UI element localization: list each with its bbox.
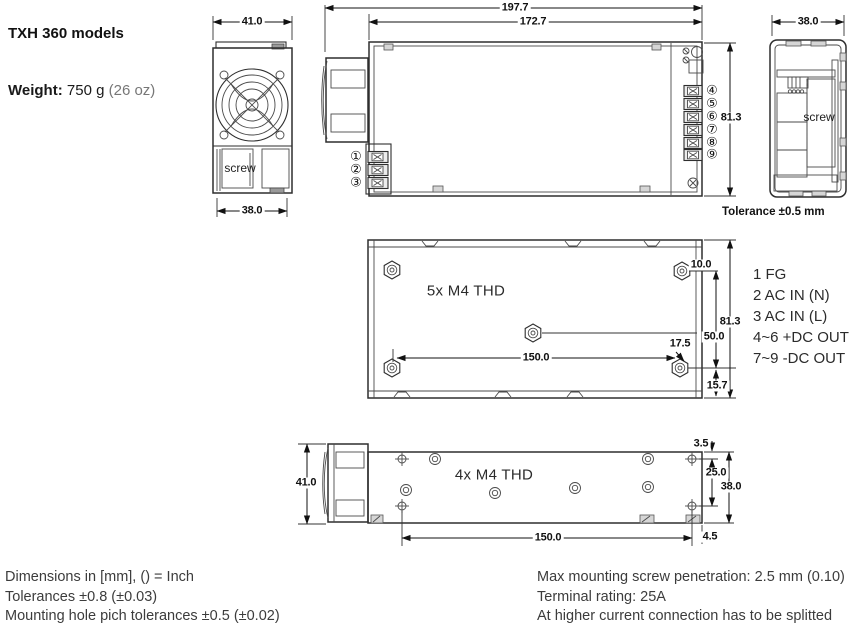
connector xyxy=(788,77,808,93)
led-window xyxy=(689,60,703,73)
m4-thread-hole xyxy=(384,261,400,279)
fan-protrusion-top xyxy=(322,58,368,142)
notes-right: Max mounting screw penetration: 2.5 mm (… xyxy=(537,568,845,627)
mechanical-drawing-page: TXH 360 models Weight: 750 g (26 oz) 41.… xyxy=(0,0,853,627)
fan-protrusion-side xyxy=(323,444,368,522)
note-terminal-rating: Terminal rating: 25A xyxy=(537,588,845,608)
m4-thread-hole xyxy=(525,324,541,342)
weight-value: 750 g xyxy=(67,82,105,99)
chassis-screw xyxy=(570,483,581,494)
dim-bottom-hole-edge: 10.0 xyxy=(689,260,714,271)
note-current-split: At higher current connection has to be s… xyxy=(537,607,845,627)
note-dimensions: Dimensions in [mm], () = Inch xyxy=(5,568,280,588)
chassis-screw xyxy=(401,485,412,496)
side-view-drawing xyxy=(298,441,734,546)
legend-item: 7~9 -DC OUT xyxy=(753,348,849,369)
side-thread-label: 4x M4 THD xyxy=(455,468,533,483)
dim-end-width: 38.0 xyxy=(796,17,821,28)
dim-side-hole-span: 25.0 xyxy=(704,468,729,479)
chassis-screw xyxy=(430,454,441,465)
dim-bottom-flange: 15.7 xyxy=(705,381,730,392)
m4-thread-hole xyxy=(674,262,690,280)
note-tolerances: Tolerances ±0.8 (±0.03) xyxy=(5,588,280,608)
terminal-number-3: ③ xyxy=(350,177,362,190)
dim-bottom-height: 81.3 xyxy=(718,317,743,328)
m4-mount-hole xyxy=(685,499,699,513)
note-hole-tolerances: Mounting hole pich tolerances ±0.5 (±0.0… xyxy=(5,607,280,627)
page-title: TXH 360 models xyxy=(8,26,124,41)
dim-top-height: 81.3 xyxy=(719,113,744,124)
dim-side-height-overall: 41.0 xyxy=(294,478,319,489)
dim-front-width-bottom: 38.0 xyxy=(240,206,265,217)
weight-line: Weight: 750 g (26 oz) xyxy=(8,83,155,98)
dim-front-width-top: 41.0 xyxy=(240,17,265,28)
top-view-drawing xyxy=(322,5,736,196)
dim-bottom-hole-span: 50.0 xyxy=(702,332,727,343)
m4-mount-hole xyxy=(395,499,409,513)
legend-item: 2 AC IN (N) xyxy=(753,285,849,306)
terminal-blocks-left xyxy=(366,144,391,194)
m4-thread-hole xyxy=(384,359,400,377)
tolerance-note: Tolerance ±0.5 mm xyxy=(722,207,825,219)
m4-thread-hole xyxy=(672,359,688,377)
end-view-drawing xyxy=(770,15,846,197)
front-view-drawing xyxy=(213,16,292,217)
mounting-feet xyxy=(371,515,700,523)
legend-item: 3 AC IN (L) xyxy=(753,306,849,327)
front-screw-label: screw xyxy=(224,162,255,174)
bottom-view-drawing xyxy=(368,240,736,398)
weight-alt-units: (26 oz) xyxy=(109,82,156,99)
terminal-blocks-right xyxy=(684,86,702,161)
dim-top-overall-length: 197.7 xyxy=(500,3,531,14)
end-screw-label: screw xyxy=(803,111,834,123)
dim-top-body-length: 172.7 xyxy=(518,17,549,28)
dim-bottom-center-offset: 17.5 xyxy=(668,339,693,350)
dim-side-hole-pitch: 150.0 xyxy=(533,533,564,544)
bottom-thread-label: 5x M4 THD xyxy=(427,284,505,299)
m4-mount-hole xyxy=(395,452,409,466)
weight-label: Weight: xyxy=(8,82,63,99)
dim-side-edge-offset: 4.5 xyxy=(701,532,720,543)
chassis-screw xyxy=(490,488,501,499)
terminal-number-9: ⑨ xyxy=(706,149,718,162)
note-screw-penetration: Max mounting screw penetration: 2.5 mm (… xyxy=(537,568,845,588)
legend-item: 1 FG xyxy=(753,264,849,285)
legend-item: 4~6 +DC OUT xyxy=(753,327,849,348)
dim-bottom-hole-pitch: 150.0 xyxy=(521,353,552,364)
m4-mount-hole xyxy=(685,452,699,466)
terminal-legend: 1 FG 2 AC IN (N) 3 AC IN (L) 4~6 +DC OUT… xyxy=(753,264,849,369)
adjust-screw-icons xyxy=(683,48,689,63)
dim-side-height-body: 38.0 xyxy=(719,482,744,493)
screw-head xyxy=(688,178,698,188)
notes-left: Dimensions in [mm], () = Inch Tolerances… xyxy=(5,568,280,627)
chassis-screw xyxy=(643,482,654,493)
chassis-screw xyxy=(643,454,654,465)
dim-side-top-offset: 3.5 xyxy=(692,439,711,450)
